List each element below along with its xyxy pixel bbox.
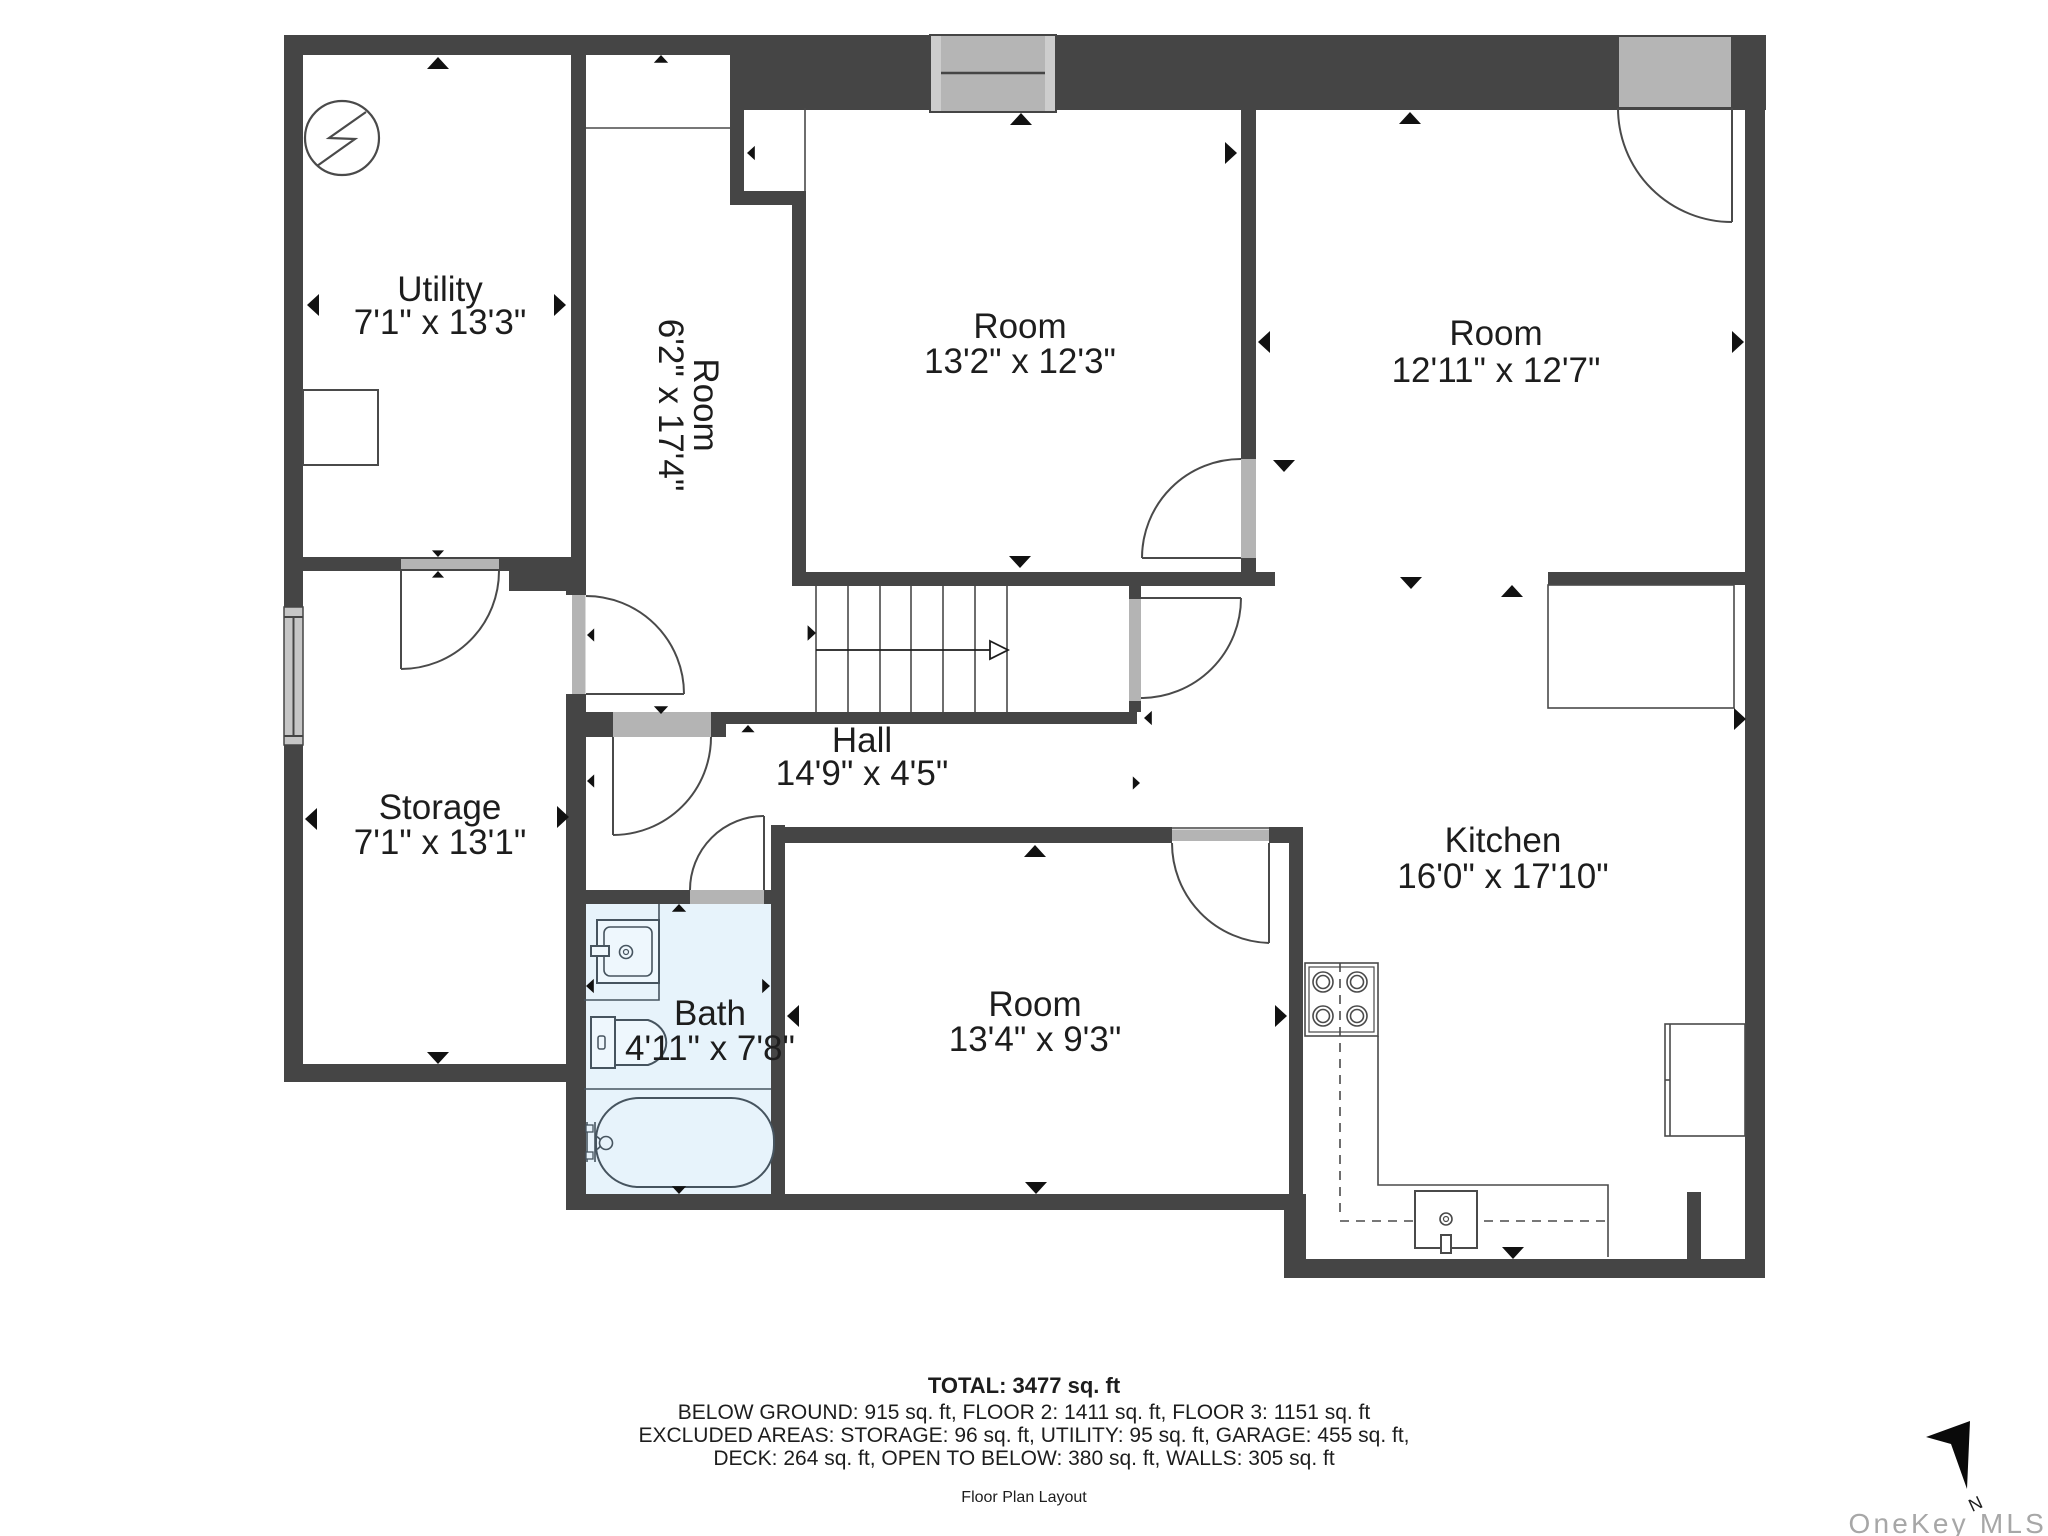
- svg-text:Bath: Bath: [674, 994, 746, 1033]
- svg-text:Room: Room: [988, 985, 1081, 1024]
- svg-text:BELOW GROUND: 915 sq. ft, FLOO: BELOW GROUND: 915 sq. ft, FLOOR 2: 1411 …: [678, 1401, 1371, 1424]
- svg-text:OneKey MLS: OneKey MLS: [1848, 1508, 2047, 1536]
- svg-text:Room: Room: [1449, 314, 1542, 353]
- svg-text:12'11" x 12'7": 12'11" x 12'7": [1392, 351, 1601, 390]
- svg-text:Kitchen: Kitchen: [1445, 821, 1562, 860]
- svg-text:Room: Room: [686, 358, 725, 451]
- svg-text:7'1" x 13'3": 7'1" x 13'3": [354, 303, 527, 342]
- svg-text:14'9" x 4'5": 14'9" x 4'5": [776, 754, 949, 793]
- svg-text:TOTAL: 3477 sq. ft: TOTAL: 3477 sq. ft: [928, 1373, 1121, 1398]
- svg-text:DECK: 264 sq. ft, OPEN TO BELO: DECK: 264 sq. ft, OPEN TO BELOW: 380 sq.…: [713, 1447, 1334, 1470]
- svg-text:Room: Room: [973, 307, 1066, 346]
- svg-text:13'2" x 12'3": 13'2" x 12'3": [924, 342, 1116, 381]
- svg-text:6'2" x 17'4": 6'2" x 17'4": [651, 319, 690, 492]
- svg-text:13'4" x 9'3": 13'4" x 9'3": [949, 1020, 1122, 1059]
- svg-text:Floor Plan Layout: Floor Plan Layout: [961, 1489, 1087, 1506]
- svg-text:EXCLUDED AREAS: STORAGE: 96 sq: EXCLUDED AREAS: STORAGE: 96 sq. ft, UTIL…: [638, 1424, 1409, 1447]
- svg-text:Storage: Storage: [379, 788, 502, 827]
- svg-text:7'1" x 13'1": 7'1" x 13'1": [354, 823, 527, 862]
- svg-text:4'11" x 7'8": 4'11" x 7'8": [625, 1029, 795, 1068]
- svg-text:16'0" x 17'10": 16'0" x 17'10": [1397, 857, 1608, 896]
